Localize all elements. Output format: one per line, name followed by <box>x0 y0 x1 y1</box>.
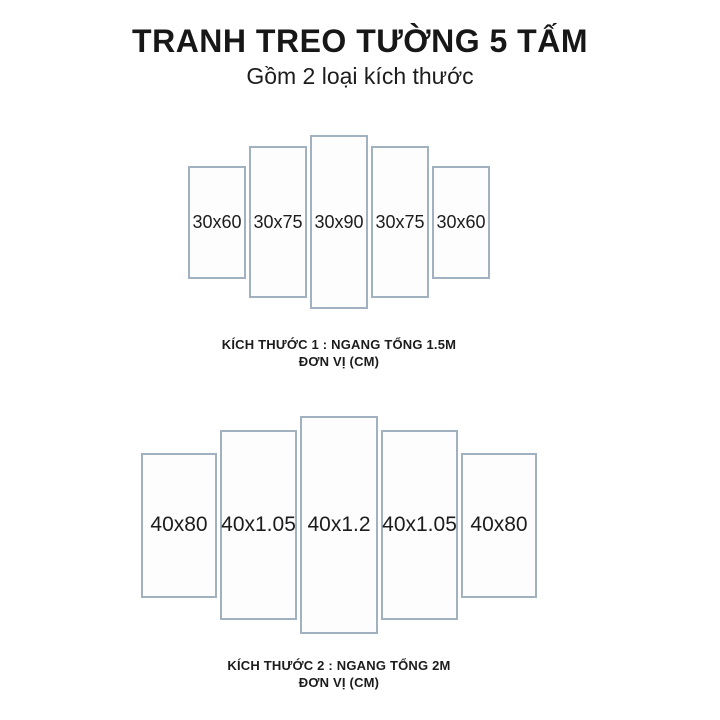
page-title: TRANH TREO TƯỜNG 5 TẤM <box>0 0 720 60</box>
panel-size-label: 40x80 <box>470 513 527 537</box>
group2-panel-1: 40x80 <box>141 453 217 598</box>
panel-size-label: 40x80 <box>150 513 207 537</box>
group2-caption-line-2: ĐƠN VỊ (CM) <box>0 674 699 691</box>
group1-panel-2: 30x75 <box>249 146 307 298</box>
size-chart-poster: TRANH TREO TƯỜNG 5 TẤM Gồm 2 loại kích t… <box>0 0 720 720</box>
group1-caption-line-1: KÍCH THƯỚC 1 : NGANG TỔNG 1.5M <box>0 336 699 353</box>
panel-size-label: 30x90 <box>314 212 363 233</box>
group2-panel-2: 40x1.05 <box>220 430 297 620</box>
panel-size-label: 30x75 <box>253 212 302 233</box>
panel-size-label: 30x75 <box>375 212 424 233</box>
group2-panel-3: 40x1.2 <box>300 416 378 634</box>
size-group-2: 40x80 40x1.05 40x1.2 40x1.05 40x80 <box>0 416 699 634</box>
panel-size-label: 40x1.05 <box>221 513 296 537</box>
group1-panel-1: 30x60 <box>188 166 246 279</box>
group1-caption-line-2: ĐƠN VỊ (CM) <box>0 353 699 370</box>
group2-caption: KÍCH THƯỚC 2 : NGANG TỔNG 2M ĐƠN VỊ (CM) <box>0 657 699 691</box>
panel-size-label: 30x60 <box>192 212 241 233</box>
page-subtitle: Gồm 2 loại kích thước <box>0 62 720 90</box>
group1-panel-5: 30x60 <box>432 166 490 279</box>
group1-caption: KÍCH THƯỚC 1 : NGANG TỔNG 1.5M ĐƠN VỊ (C… <box>0 336 699 370</box>
panel-size-label: 40x1.05 <box>382 513 457 537</box>
group1-panel-3: 30x90 <box>310 135 368 309</box>
panel-size-label: 30x60 <box>436 212 485 233</box>
group1-panel-4: 30x75 <box>371 146 429 298</box>
size-diagram: 30x60 30x75 30x90 30x75 30x60 KÍCH THƯỚC… <box>0 135 699 691</box>
group2-panel-5: 40x80 <box>461 453 537 598</box>
panel-size-label: 40x1.2 <box>307 513 370 537</box>
group2-panel-4: 40x1.05 <box>381 430 458 620</box>
group2-caption-line-1: KÍCH THƯỚC 2 : NGANG TỔNG 2M <box>0 657 699 674</box>
size-group-1: 30x60 30x75 30x90 30x75 30x60 <box>0 135 699 309</box>
